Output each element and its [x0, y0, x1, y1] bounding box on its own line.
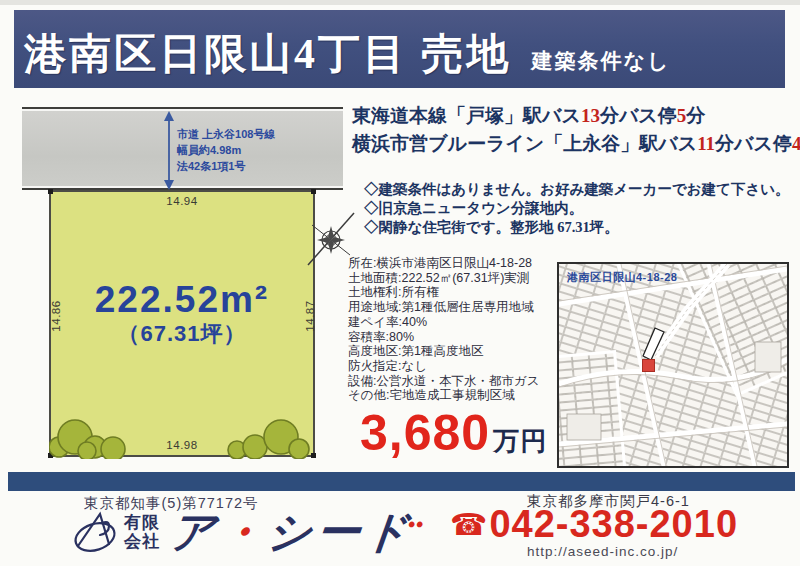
bush-icon [49, 403, 171, 459]
phone-row: ☎ 042-338-2010 [450, 503, 738, 546]
detail-row: 設備:公営水道・本下水・都市ガス [348, 374, 540, 389]
dimension-top: 14.94 [51, 195, 313, 207]
area-square-meters: 222.52m² [51, 280, 313, 320]
scan-artifact [0, 0, 800, 5]
footer-divider-bar [8, 472, 795, 491]
access-text: 東海道本線「戸塚」駅バス [352, 105, 581, 126]
survey-point [311, 453, 316, 458]
detail-row: 土地面積:222.52㎡(67.31坪)実測 [348, 271, 540, 286]
wordmark-text: シード [265, 507, 416, 556]
road-label: 市道 上永谷108号線 幅員約4.98m 法42条1項1号 [177, 126, 275, 174]
road-law: 法42条1項1号 [177, 158, 275, 174]
flyer-page: 港南区日限山4丁目 売地 建築条件なし 市道 上永谷108号線 幅員約4.98m… [0, 0, 800, 566]
wordmark-red-dakuten: •• [407, 513, 425, 535]
road-name: 市道 上永谷108号線 [177, 126, 275, 142]
access-minutes: 4 [792, 133, 800, 154]
detail-row: 容積率:80% [348, 330, 540, 345]
access-minutes: 11 [697, 133, 715, 154]
feature-item: ◇旧京急ニュータウン分譲地内。 [364, 199, 790, 218]
detail-row: 用途地域:第1種低層住居専用地域 [348, 300, 540, 315]
detail-row: その他:宅地造成工事規制区域 [348, 388, 540, 403]
map-street-art [559, 264, 787, 466]
property-details: 所在:横浜市港南区日限山4-18-28 土地面積:222.52㎡(67.31坪)… [348, 256, 540, 403]
feature-list: ◇建築条件はありません。お好み建築メーカーでお建て下さい。 ◇旧京急ニュータウン… [364, 180, 790, 237]
wordmark-text: ア [168, 507, 222, 556]
detail-row: 土地権利:所有権 [348, 285, 540, 300]
access-text: 分 [686, 105, 705, 126]
plot-area-label: 222.52m² （67.31坪） [51, 280, 313, 348]
phone-icon: ☎ [450, 507, 487, 542]
price-amount: 3,680 [360, 405, 490, 461]
price-unit: 万円 [493, 424, 547, 459]
access-line-2: 横浜市営ブルーライン「上永谷」駅バス11分バス停4分 [352, 130, 800, 158]
page-subtitle: 建築条件なし [532, 47, 671, 75]
access-line-1: 東海道本線「戸塚」駅バス13分バス停5分 [352, 102, 800, 130]
detail-row: 高度地区:第1種高度地区 [348, 344, 540, 359]
survey-point [48, 189, 53, 194]
page-title: 港南区日限山4丁目 売地 [24, 24, 512, 84]
access-text: 分バス停 [715, 133, 792, 154]
detail-row: 防火指定:なし [348, 359, 540, 374]
website-url: http://aseed-inc.co.jp/ [527, 544, 678, 559]
bush-icon [219, 405, 311, 459]
company-type-line: 会社 [124, 532, 160, 551]
access-text: 分バス停 [600, 105, 677, 126]
company-type-label: 有限 会社 [124, 513, 160, 551]
company-type-line: 有限 [124, 513, 160, 532]
road-width-arrow-icon [160, 111, 178, 190]
access-minutes: 5 [677, 105, 687, 126]
company-logo-icon [72, 508, 120, 556]
detail-row: 建ペイ率:40% [348, 315, 540, 330]
access-minutes: 13 [581, 105, 600, 126]
map-property-marker [642, 359, 655, 372]
land-plot-diagram: 14.94 14.98 14.86 14.87 222.52m² （67.31坪… [49, 190, 315, 457]
location-map: 港南区日限山4-18-28 [557, 262, 789, 468]
header-band: 港南区日限山4丁目 売地 建築条件なし [14, 10, 785, 88]
station-access: 東海道本線「戸塚」駅バス13分バス停5分 横浜市営ブルーライン「上永谷」駅バス1… [352, 102, 800, 158]
area-tsubo: （67.31坪） [51, 320, 313, 348]
map-address-label: 港南区日限山4-18-28 [567, 270, 677, 285]
detail-row: 所在:横浜市港南区日限山4-18-28 [348, 256, 540, 271]
survey-point [311, 189, 316, 194]
company-name-wordmark: ア・シード•• [167, 503, 426, 562]
road-strip: 市道 上永谷108号線 幅員約4.98m 法42条1項1号 [22, 107, 343, 190]
phone-number: 042-338-2010 [489, 503, 738, 546]
wordmark-red-dot: ・ [217, 507, 270, 556]
access-text: 横浜市営ブルーライン「上永谷」駅バス [352, 133, 697, 154]
road-width: 幅員約4.98m [177, 142, 275, 158]
feature-item: ◇閑静な住宅街です。整形地 67.31坪。 [364, 218, 790, 237]
price: 3,680 万円 [360, 405, 547, 461]
feature-item: ◇建築条件はありません。お好み建築メーカーでお建て下さい。 [364, 180, 790, 199]
